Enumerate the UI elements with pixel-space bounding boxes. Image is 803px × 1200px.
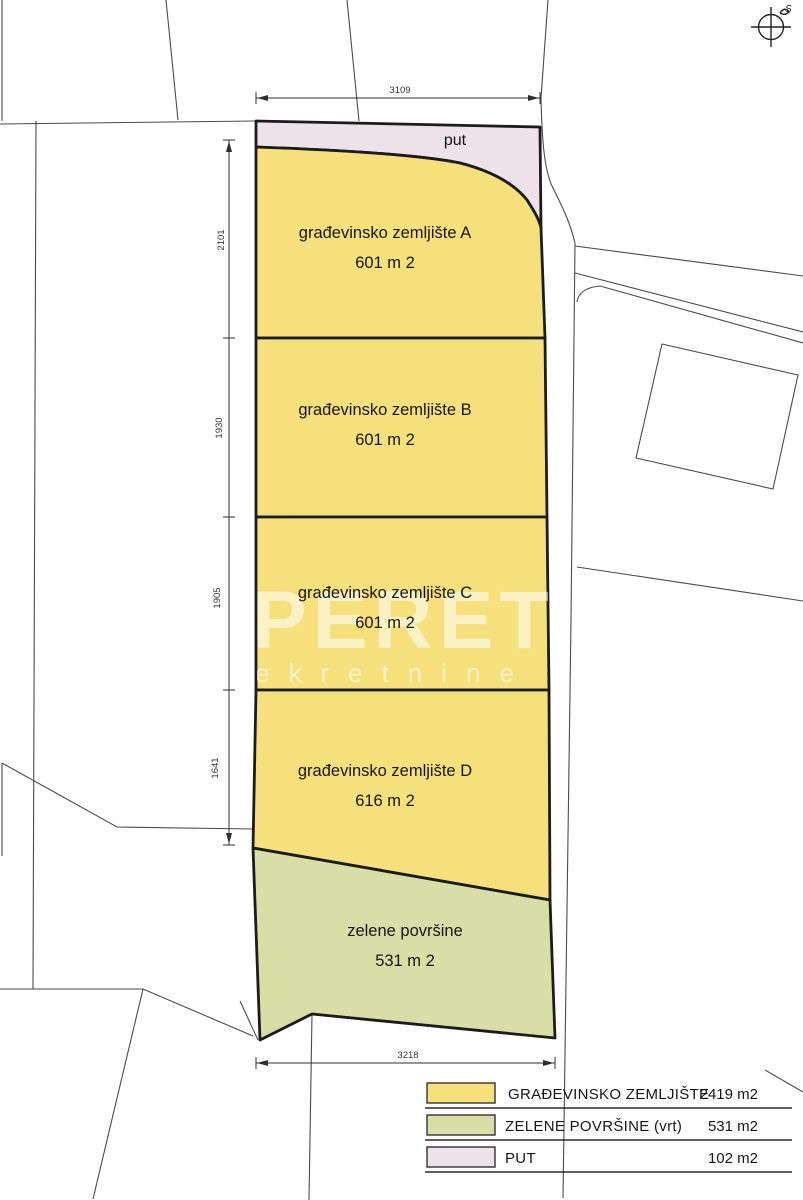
watermark-subtext: ekretnine: [255, 658, 533, 688]
site-plan-drawing: PERETI ekretnine put građevinsko zemljiš…: [0, 0, 803, 1200]
legend-value-building-land: 2419 m2: [700, 1086, 758, 1103]
legend: GRAĐEVINSKO ZEMLJIŠTE 2419 m2 ZELENE POV…: [425, 1083, 792, 1172]
legend-label-building-land: GRAĐEVINSKO ZEMLJIŠTE: [508, 1086, 709, 1103]
parcel-green-area: 531 m 2: [375, 952, 435, 970]
building-footprint: [636, 344, 798, 489]
parcel-corner-line: [577, 286, 803, 343]
road-edge-line: [575, 273, 803, 332]
legend-label-green-areas: ZELENE POVRŠINE (vrt): [505, 1118, 682, 1135]
boundary-line: [93, 989, 143, 1199]
dimension-arrow: [528, 95, 539, 101]
boundary-line: [309, 1014, 312, 1200]
site-plan-page: PERETI ekretnine put građevinsko zemljiš…: [0, 0, 803, 1200]
dimension-top-value: 3109: [389, 85, 410, 96]
parcel-d-area: 616 m 2: [355, 792, 415, 810]
dimension-left-value-1: 2101: [216, 229, 227, 250]
north-compass-icon: S: [751, 4, 792, 47]
dimension-left-value-3: 1905: [212, 587, 223, 608]
legend-swatch-green-areas: [427, 1115, 495, 1135]
boundary-line: [0, 121, 256, 124]
road-edge-line: [575, 246, 803, 276]
dimension-arrow: [257, 95, 268, 101]
parcel-green-name: zelene površine: [347, 922, 463, 940]
legend-swatch-building-land: [427, 1083, 495, 1103]
dimension-left-value-2: 1930: [214, 417, 225, 438]
boundary-line: [166, 0, 178, 120]
legend-value-green-areas: 531 m2: [708, 1118, 758, 1135]
legend-value-road: 102 m2: [708, 1150, 758, 1167]
boundary-line: [577, 567, 803, 601]
dimension-arrow: [257, 1060, 268, 1066]
dimension-arrow: [226, 141, 232, 152]
parcel-c-area: 601 m 2: [355, 614, 415, 632]
parcel-d-name: građevinsko zemljište D: [298, 762, 472, 780]
boundary-line: [765, 1070, 803, 1092]
dimension-arrow: [543, 1060, 554, 1066]
parcel-a-area: 601 m 2: [355, 254, 415, 272]
boundary-line: [347, 0, 359, 121]
parcel-b-shape: [256, 338, 547, 517]
dimension-arrow: [226, 833, 232, 844]
dimension-bottom-value: 3218: [397, 1050, 418, 1061]
parcel-b-area: 601 m 2: [355, 431, 415, 449]
legend-label-road: PUT: [505, 1150, 536, 1167]
legend-swatch-road: [427, 1147, 495, 1167]
compass-north-label: S: [785, 4, 792, 15]
boundary-line: [0, 989, 253, 1036]
parcel-b-name: građevinsko zemljište B: [298, 401, 471, 419]
parcel-put-label: put: [444, 132, 467, 149]
parcel-c-name: građevinsko zemljište C: [298, 584, 472, 602]
parcel-a-name: građevinsko zemljište A: [299, 224, 471, 242]
boundary-line: [33, 121, 36, 989]
dimension-left-value-4: 1641: [210, 757, 221, 778]
